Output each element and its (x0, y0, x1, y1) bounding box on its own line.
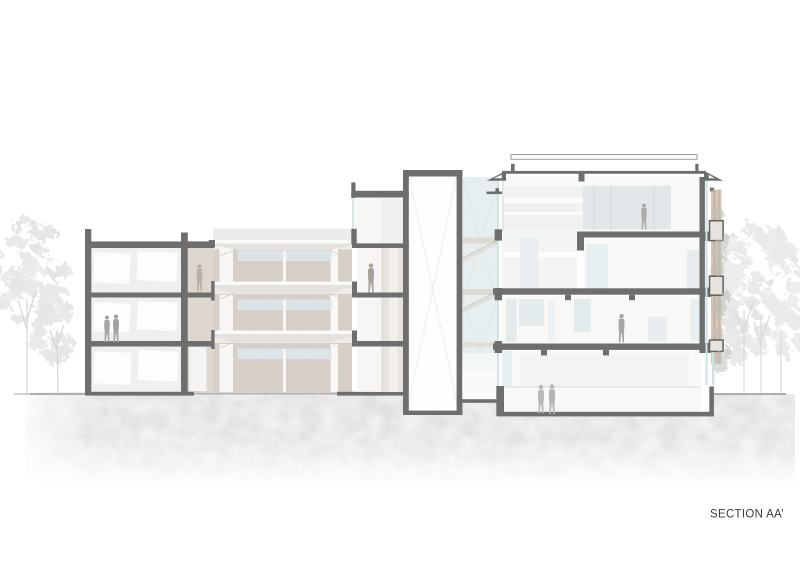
svg-text:SECTION AA’: SECTION AA’ (710, 509, 784, 521)
